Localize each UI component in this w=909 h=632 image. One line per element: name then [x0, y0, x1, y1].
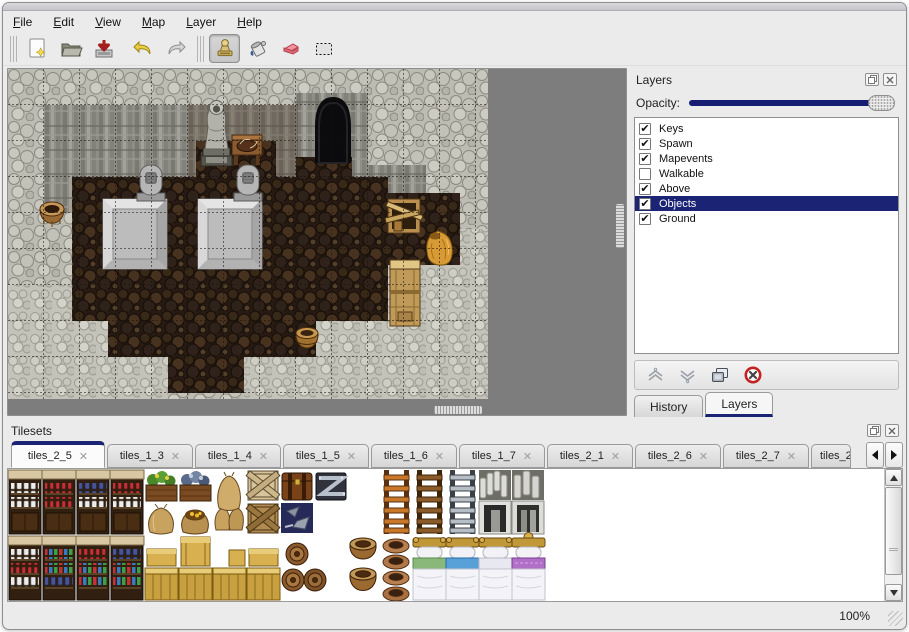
map-vertical-scrollbar[interactable] — [616, 69, 624, 415]
menu-view[interactable]: View — [95, 15, 121, 29]
tab-close-icon[interactable]: ✕ — [347, 450, 356, 463]
rect-select-tool-button[interactable] — [308, 34, 339, 63]
tileset-vscroll-thumb[interactable] — [885, 487, 902, 575]
layer-row-above[interactable]: ✔Above — [635, 181, 898, 196]
open-folder-icon — [59, 37, 83, 61]
tab-close-icon[interactable]: ✕ — [171, 450, 180, 463]
toolbar-drag-handle[interactable] — [10, 36, 17, 62]
tile-shelf-multicolor-1[interactable] — [42, 536, 76, 600]
layer-label: Objects — [659, 198, 696, 210]
tile-stone-doorway-2[interactable] — [512, 470, 544, 534]
map-view[interactable] — [7, 68, 627, 416]
move-layer-up-button[interactable] — [647, 367, 664, 384]
tileset-tab-label: tiles_2_6 — [648, 450, 692, 462]
tileset-tab-tiles_1_7[interactable]: tiles_1_7✕ — [459, 444, 545, 468]
tile-stone-doorway-1[interactable] — [479, 470, 511, 534]
fill-tool-button[interactable] — [242, 34, 273, 63]
layer-visibility-checkbox[interactable]: ✔ — [639, 123, 651, 135]
tileset-tab-tiles_2_7[interactable]: tiles_2_7✕ — [723, 444, 809, 468]
tab-scroll-right-button[interactable] — [885, 442, 903, 468]
layers-dock-title: Layers — [636, 73, 672, 87]
layer-row-objects[interactable]: ✔Objects — [635, 196, 898, 211]
layers-dock-tabs: HistoryLayers — [630, 390, 901, 417]
map-grid-overlay — [8, 69, 488, 399]
tileset-tab-tiles_1_4[interactable]: tiles_1_4✕ — [195, 444, 281, 468]
tileset-tab-label: tiles_2_5 — [28, 450, 72, 462]
tile-shelf-blue-pots[interactable] — [76, 470, 110, 534]
tab-close-icon[interactable]: ✕ — [79, 450, 88, 463]
layer-visibility-checkbox[interactable]: ✔ — [639, 138, 651, 150]
map-vscroll-thumb[interactable] — [616, 204, 624, 248]
tileset-tab-tiles_2_5[interactable]: tiles_2_5✕ — [11, 441, 105, 468]
tileset-tab-tiles_2_1[interactable]: tiles_2_1✕ — [547, 444, 633, 468]
layer-label: Ground — [659, 213, 696, 225]
tileset-tab-tiles_1_6[interactable]: tiles_1_6✕ — [371, 444, 457, 468]
tab-scroll-left-button[interactable] — [866, 442, 884, 468]
duplicate-layer-button[interactable] — [711, 367, 729, 384]
opacity-slider[interactable] — [689, 95, 895, 111]
tileset-tab-label: tiles_1_6 — [384, 450, 428, 462]
map-canvas[interactable] — [8, 69, 488, 399]
tile-shelf-multicolor-2[interactable] — [76, 536, 110, 600]
opacity-label: Opacity: — [636, 96, 680, 110]
tilesets-dock-title: Tilesets — [11, 424, 52, 438]
eraser-tool-button[interactable] — [275, 34, 306, 63]
redo-arrow-icon — [164, 37, 188, 61]
menu-help[interactable]: Help — [237, 15, 262, 29]
tile-crate-x-light[interactable] — [246, 471, 280, 500]
tile-bed-blue[interactable] — [446, 538, 479, 601]
paint-bucket-icon — [246, 37, 270, 61]
tile-crate-x-dark[interactable] — [246, 504, 280, 533]
tileset-view[interactable] — [7, 468, 903, 602]
menu-map[interactable]: Map — [142, 15, 165, 29]
scroll-down-button[interactable] — [885, 584, 902, 601]
close-panel-icon[interactable] — [883, 73, 897, 86]
tileset-tab-label: tiles_2_1 — [560, 450, 604, 462]
tile-bed-green[interactable] — [413, 538, 446, 601]
tileset-tab-label: tiles_1_5 — [296, 450, 340, 462]
tilesets-close-panel-icon[interactable] — [885, 424, 899, 437]
tile-bed-purple[interactable] — [512, 533, 545, 600]
tile-open-sack-gold[interactable] — [182, 510, 209, 534]
delete-layer-button[interactable] — [744, 366, 762, 384]
menu-layer[interactable]: Layer — [186, 15, 216, 29]
stamp-tool-button[interactable] — [209, 34, 240, 63]
layer-row-keys[interactable]: ✔Keys — [635, 121, 898, 136]
save-icon — [92, 37, 116, 61]
tileset-tab-label: tiles_2 — [820, 450, 851, 462]
layers-dock: Layers Opacity: ✔Keys✔Spawn✔MapeventsWal… — [630, 68, 903, 417]
layer-label: Keys — [659, 123, 683, 135]
window-titlebar — [3, 3, 906, 11]
tab-close-icon[interactable]: ✕ — [523, 450, 532, 463]
map-hscroll-thumb[interactable] — [434, 406, 482, 414]
layer-row-mapevents[interactable]: ✔Mapevents — [635, 151, 898, 166]
tab-close-icon[interactable]: ✕ — [435, 450, 444, 463]
layer-row-ground[interactable]: ✔Ground — [635, 211, 898, 226]
float-panel-icon[interactable] — [865, 73, 879, 86]
tab-close-icon[interactable]: ✕ — [259, 450, 268, 463]
new-page-icon — [26, 37, 50, 61]
layer-row-spawn[interactable]: ✔Spawn — [635, 136, 898, 151]
tilesets-dock-titlebar: Tilesets — [7, 419, 903, 440]
layer-toolbar — [634, 360, 899, 390]
tile-shelf-multicolor-3[interactable] — [110, 536, 144, 600]
layer-visibility-checkbox[interactable] — [639, 168, 651, 180]
save-map-button[interactable] — [88, 34, 119, 63]
tileset-tab-tiles_2[interactable]: tiles_2 — [811, 444, 851, 468]
tile-gold-crate-stack[interactable] — [179, 537, 212, 600]
layer-visibility-checkbox[interactable]: ✔ — [639, 213, 651, 225]
tileset-tab-label: tiles_1_4 — [208, 450, 252, 462]
menu-edit[interactable]: Edit — [53, 15, 74, 29]
stamp-icon — [213, 37, 237, 61]
undo-arrow-icon — [131, 37, 155, 61]
tab-close-icon[interactable]: ✕ — [787, 450, 796, 463]
layer-label: Spawn — [659, 138, 693, 150]
redo-button[interactable] — [160, 34, 191, 63]
layer-visibility-checkbox[interactable]: ✔ — [639, 183, 651, 195]
tile-ladder-gray[interactable] — [450, 470, 475, 534]
resize-grip[interactable] — [888, 611, 903, 626]
menu-file[interactable]: File — [13, 15, 32, 29]
tileset-tab-tiles_2_6[interactable]: tiles_2_6✕ — [635, 444, 721, 468]
new-map-button[interactable] — [22, 34, 53, 63]
zoom-level-label: 100% — [839, 609, 870, 623]
tab-close-icon[interactable]: ✕ — [699, 450, 708, 463]
layer-row-walkable[interactable]: Walkable — [635, 166, 898, 181]
opacity-slider-handle[interactable] — [868, 95, 895, 111]
scroll-up-button[interactable] — [885, 469, 902, 486]
layer-label: Above — [659, 183, 690, 195]
tile-ladder-orange[interactable] — [384, 470, 409, 534]
eraser-icon — [279, 37, 303, 61]
layer-visibility-checkbox[interactable]: ✔ — [639, 153, 651, 165]
tile-shelf-red-bottles[interactable] — [42, 470, 76, 534]
tile-shelf-jars[interactable] — [8, 536, 42, 600]
tile-ladder-brown[interactable] — [417, 470, 442, 534]
toolbar — [3, 32, 906, 65]
layer-visibility-checkbox[interactable]: ✔ — [639, 198, 651, 210]
selection-rect-icon — [312, 37, 336, 61]
opacity-row: Opacity: — [630, 89, 901, 114]
tile-shelf-mixed[interactable] — [110, 470, 144, 534]
tile-gold-crate-low[interactable] — [145, 549, 178, 600]
app-window: FileEditViewMapLayerHelp — [2, 2, 907, 630]
open-map-button[interactable] — [55, 34, 86, 63]
tile-chest-metal[interactable] — [316, 473, 346, 500]
tile-bed-white[interactable] — [479, 538, 512, 601]
tile-navy-metal[interactable] — [281, 503, 313, 533]
tileset-tabs: tiles_2_5✕tiles_1_3✕tiles_1_4✕tiles_1_5✕… — [7, 440, 903, 468]
tilesets-dock: Tilesets tiles_2_5✕tiles_1_3✕tiles_1_4✕t… — [7, 419, 903, 602]
opacity-slider-track[interactable] — [689, 100, 891, 106]
tileset-canvas[interactable] — [8, 469, 868, 601]
main-area: Layers Opacity: ✔Keys✔Spawn✔MapeventsWal… — [3, 65, 906, 417]
map-horizontal-scrollbar[interactable] — [8, 406, 626, 414]
tileset-vertical-scrollbar[interactable] — [884, 469, 902, 601]
tileset-tab-tiles_1_3[interactable]: tiles_1_3✕ — [107, 444, 193, 468]
tile-shelf-dishes[interactable] — [8, 470, 42, 534]
tilesets-float-panel-icon[interactable] — [867, 424, 881, 437]
layers-dock-titlebar: Layers — [630, 68, 901, 89]
undo-button[interactable] — [127, 34, 158, 63]
layer-label: Walkable — [659, 168, 704, 180]
layer-list[interactable]: ✔Keys✔Spawn✔MapeventsWalkable✔Above✔Obje… — [634, 117, 899, 354]
tab-close-icon[interactable]: ✕ — [611, 450, 620, 463]
dock-tab-layers[interactable]: Layers — [705, 392, 773, 417]
dock-tab-history[interactable]: History — [634, 395, 703, 417]
tileset-tab-tiles_1_5[interactable]: tiles_1_5✕ — [283, 444, 369, 468]
tileset-tab-label: tiles_2_7 — [736, 450, 780, 462]
tile-chest-banded[interactable] — [282, 473, 312, 500]
toolbar-drag-handle-2[interactable] — [197, 36, 204, 62]
move-layer-down-button[interactable] — [679, 367, 696, 384]
tileset-tab-label: tiles_1_3 — [120, 450, 164, 462]
layer-label: Mapevents — [659, 153, 713, 165]
tile-gold-counter-2[interactable] — [247, 549, 280, 600]
menubar: FileEditViewMapLayerHelp — [3, 11, 906, 32]
tileset-tab-label: tiles_1_7 — [472, 450, 516, 462]
statusbar: 100% — [3, 602, 906, 629]
